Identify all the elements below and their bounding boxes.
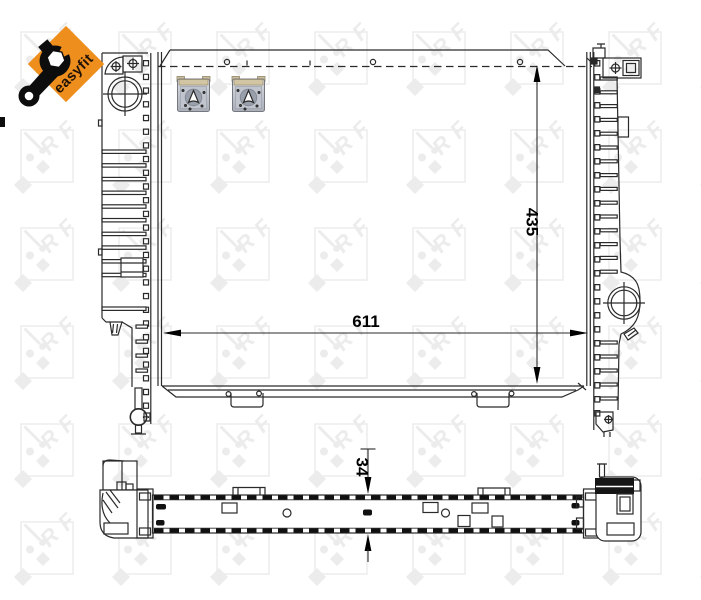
top-bracket-right [603,58,641,78]
core-top-band [158,50,592,67]
radiator-technical-drawing-page: R F [0,0,701,600]
height-value: 435 [523,208,542,236]
speed-nut-clip-1 [177,77,210,112]
bottom-view-left-tank [100,460,153,538]
side-spout [110,322,122,335]
mounting-bracket-right [472,391,514,407]
hose-clip [121,258,143,277]
right-tank-ribs [600,77,617,400]
easyfit-badge: easyfit [0,0,130,140]
depth-value: 34 [353,458,372,477]
core-bottom-band [162,383,586,407]
radiator-bottom-view: 34 [100,449,641,562]
width-value: 611 [352,312,379,331]
bottom-view-bar [153,488,584,534]
bottom-view-right-tank [577,464,642,541]
speed-nut-clip-2 [232,77,265,112]
lower-spout [624,328,638,340]
side-lug [618,117,629,137]
dimension-width: 611 [163,312,588,336]
mounting-bracket-left [226,391,263,407]
radiator-front-view: 435 611 [99,44,646,437]
dimension-height: 435 [523,65,542,384]
